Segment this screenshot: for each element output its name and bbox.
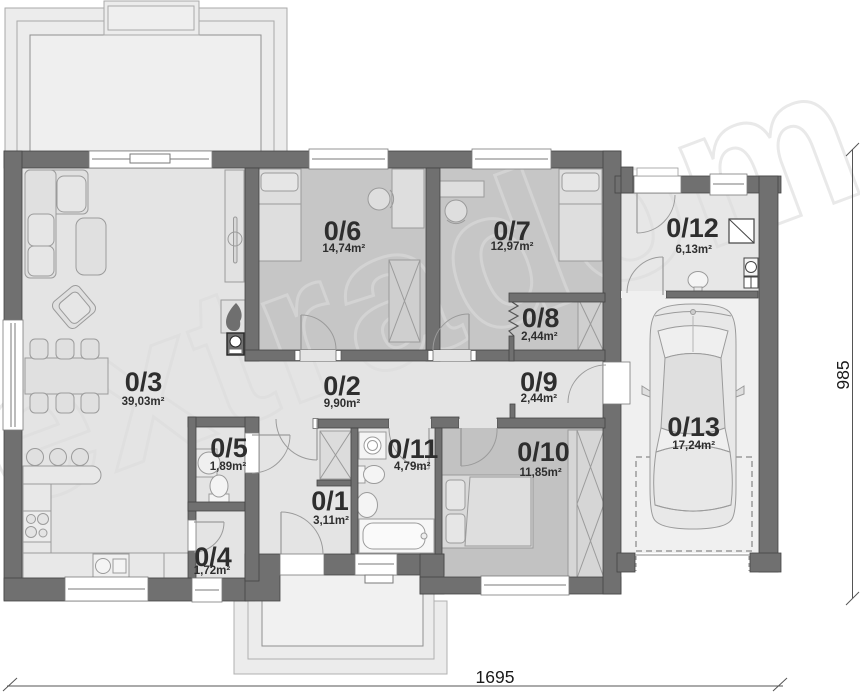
svg-text:0/3: 0/3: [125, 367, 163, 397]
svg-text:1695: 1695: [476, 667, 515, 687]
svg-text:985: 985: [833, 360, 853, 389]
svg-text:0/11: 0/11: [387, 434, 438, 464]
svg-text:1,72m²: 1,72m²: [194, 565, 231, 577]
svg-text:0/6: 0/6: [324, 216, 362, 246]
svg-text:39,03m²: 39,03m²: [122, 396, 165, 408]
svg-text:1,89m²: 1,89m²: [210, 461, 247, 473]
svg-text:11,85m²: 11,85m²: [519, 467, 561, 479]
svg-text:0/13: 0/13: [667, 412, 720, 442]
svg-text:2,44m²: 2,44m²: [521, 331, 558, 343]
svg-text:0/5: 0/5: [210, 433, 248, 463]
svg-text:4,79m²: 4,79m²: [394, 461, 431, 473]
svg-text:3,11m²: 3,11m²: [313, 515, 349, 527]
svg-text:2,44m²: 2,44m²: [521, 393, 558, 405]
svg-text:0/8: 0/8: [522, 303, 560, 333]
svg-text:0/2: 0/2: [323, 371, 361, 401]
svg-text:17,24m²: 17,24m²: [672, 440, 715, 452]
svg-text:9,90m²: 9,90m²: [324, 398, 361, 410]
svg-text:12,97m²: 12,97m²: [491, 241, 534, 253]
svg-text:14,74m²: 14,74m²: [322, 243, 365, 255]
svg-text:0/1: 0/1: [311, 486, 349, 516]
svg-text:0/10: 0/10: [517, 437, 570, 467]
svg-text:6,13m²: 6,13m²: [675, 244, 712, 256]
svg-text:0/12: 0/12: [666, 213, 719, 243]
